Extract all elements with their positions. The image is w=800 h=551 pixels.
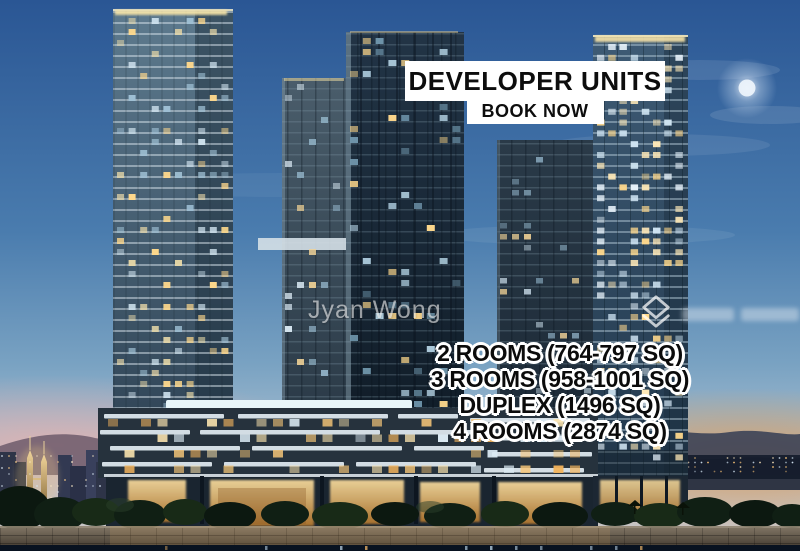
property-photo <box>0 0 800 551</box>
unit-type-2rooms: 2 ROOMS (764-797 SQ) <box>408 340 712 366</box>
unit-type-4rooms: 4 ROOMS (2874 SQ) <box>408 418 712 444</box>
logo-watermark <box>639 292 799 332</box>
developer-units-banner: DEVELOPER UNITSBOOK NOW <box>405 61 665 124</box>
unit-type-list: 2 ROOMS (764-797 SQ) 3 ROOMS (958-1001 S… <box>408 340 712 444</box>
logo-text-blur-word1 <box>682 308 734 321</box>
logo-watermark-text <box>682 308 799 321</box>
moon <box>717 58 777 118</box>
stacked-chevrons-icon <box>639 292 673 332</box>
banner-title: DEVELOPER UNITS <box>405 61 665 101</box>
unit-type-3rooms: 3 ROOMS (958-1001 SQ) <box>408 366 712 392</box>
listing-image: DEVELOPER UNITSBOOK NOW 2 ROOMS (764-797… <box>0 0 800 551</box>
tower-left <box>113 9 233 454</box>
seawall <box>0 526 800 548</box>
logo-text-blur-word2 <box>741 308 799 321</box>
water <box>0 545 800 551</box>
agent-watermark: Jyan Wong <box>308 296 442 325</box>
banner-subtitle: BOOK NOW <box>467 101 604 124</box>
unit-type-duplex: DUPLEX (1496 SQ) <box>408 392 712 418</box>
